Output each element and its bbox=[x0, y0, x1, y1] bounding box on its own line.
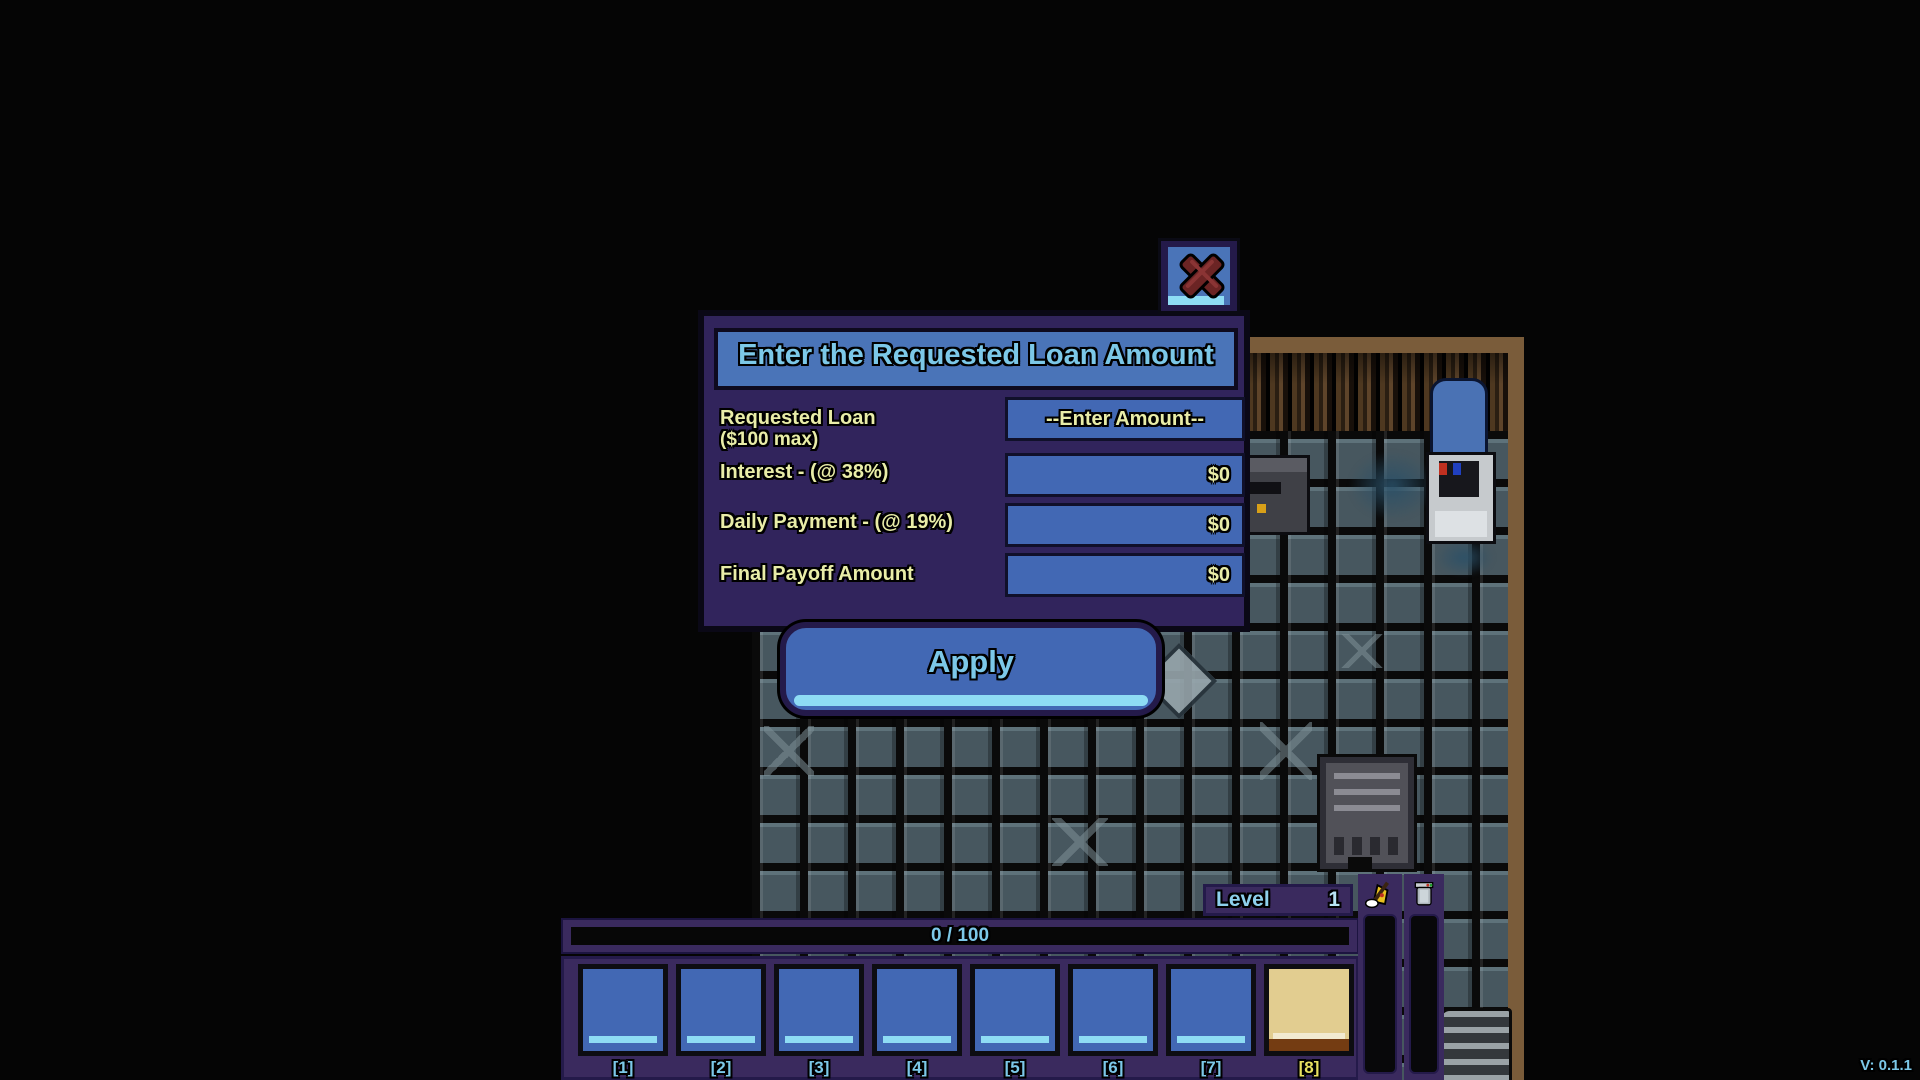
slot-item bbox=[681, 969, 761, 1051]
machine-light bbox=[1257, 504, 1266, 513]
hotbar-slot-5-label: [5] bbox=[970, 1058, 1060, 1078]
hotbar: [1] [2] [3] [4] [5] [6] [7] [8] bbox=[561, 956, 1359, 1080]
slot-item bbox=[1171, 969, 1251, 1051]
requested-loan-label-line2: ($100 max) bbox=[720, 429, 1010, 450]
xp-progress-text: 0 / 100 bbox=[563, 925, 1357, 947]
water-cooler bbox=[1426, 452, 1496, 544]
wall-right-border bbox=[1508, 337, 1524, 1080]
slot-item bbox=[779, 969, 859, 1051]
game-screen: Enter the Requested Loan Amount Requeste… bbox=[0, 0, 1920, 1080]
hotbar-slot-8-label: [8] bbox=[1264, 1058, 1354, 1078]
slot-item bbox=[583, 969, 663, 1051]
apply-button[interactable]: Apply bbox=[780, 622, 1162, 716]
hotbar-slot-2[interactable] bbox=[676, 964, 766, 1056]
hotbar-slot-1[interactable] bbox=[578, 964, 668, 1056]
mop-icon bbox=[1365, 878, 1395, 910]
interest-value: $0 bbox=[1005, 453, 1245, 497]
floor-scratch bbox=[1052, 818, 1108, 866]
requested-loan-label: Requested Loan ($100 max) bbox=[720, 408, 1010, 450]
requested-loan-input[interactable]: --Enter Amount-- bbox=[1005, 397, 1245, 441]
final-payoff-label: Final Payoff Amount bbox=[720, 564, 1010, 585]
slot-item bbox=[877, 969, 957, 1051]
cleaning-meter bbox=[1358, 874, 1402, 1080]
level-indicator: Level 1 bbox=[1203, 884, 1353, 916]
x-icon bbox=[1175, 249, 1229, 303]
cooler-hot-tap bbox=[1439, 463, 1447, 475]
level-label: Level bbox=[1216, 888, 1270, 912]
water-cooler-bottle bbox=[1430, 378, 1488, 460]
apply-button-highlight bbox=[794, 695, 1148, 706]
dialog-title: Enter the Requested Loan Amount bbox=[714, 328, 1238, 390]
hotbar-slot-3-label: [3] bbox=[774, 1058, 864, 1078]
apply-button-label: Apply bbox=[786, 644, 1156, 680]
notice-text-lines bbox=[1334, 773, 1400, 821]
machine-bezel bbox=[1241, 458, 1307, 472]
slot-item-selected bbox=[1269, 969, 1349, 1051]
hotbar-slot-4-label: [4] bbox=[872, 1058, 962, 1078]
hotbar-slot-1-label: [1] bbox=[578, 1058, 668, 1078]
supply-meter-track bbox=[1409, 914, 1439, 1074]
hotbar-slot-5[interactable] bbox=[970, 964, 1060, 1056]
slot-item bbox=[1073, 969, 1153, 1051]
hotbar-slot-8[interactable] bbox=[1264, 964, 1354, 1056]
cleaning-meter-track bbox=[1363, 914, 1397, 1074]
slot-item bbox=[975, 969, 1055, 1051]
version-label: V: 0.1.1 bbox=[1860, 1057, 1912, 1074]
hotbar-slot-7[interactable] bbox=[1166, 964, 1256, 1056]
close-button[interactable] bbox=[1158, 238, 1240, 314]
machine-slot bbox=[1249, 482, 1281, 494]
floor-scratch bbox=[1340, 634, 1384, 668]
level-value: 1 bbox=[1328, 888, 1340, 912]
xp-progress-bar: 0 / 100 bbox=[561, 918, 1359, 954]
hotbar-slot-4[interactable] bbox=[872, 964, 962, 1056]
supply-meter bbox=[1404, 874, 1444, 1080]
cooler-cold-tap bbox=[1453, 463, 1461, 475]
notice-board-stand bbox=[1348, 857, 1372, 871]
cooler-base bbox=[1435, 511, 1487, 537]
hotbar-slot-6-label: [6] bbox=[1068, 1058, 1158, 1078]
floor-scratch bbox=[764, 726, 814, 776]
hotbar-slot-7-label: [7] bbox=[1166, 1058, 1256, 1078]
hotbar-slot-6[interactable] bbox=[1068, 964, 1158, 1056]
canister-icon bbox=[1411, 878, 1437, 910]
daily-payment-value: $0 bbox=[1005, 503, 1245, 547]
loan-dialog: Enter the Requested Loan Amount Requeste… bbox=[698, 310, 1250, 632]
hotbar-slot-2-label: [2] bbox=[676, 1058, 766, 1078]
floor-prop bbox=[1438, 1008, 1512, 1080]
daily-payment-label: Daily Payment - (@ 19%) bbox=[720, 512, 1010, 533]
notice-board bbox=[1320, 757, 1414, 869]
requested-loan-label-line1: Requested Loan bbox=[720, 408, 1010, 429]
floor-scratch bbox=[1260, 722, 1312, 780]
final-payoff-value: $0 bbox=[1005, 553, 1245, 597]
interest-label: Interest - (@ 38%) bbox=[720, 462, 1010, 483]
notice-footer-marks bbox=[1334, 837, 1400, 855]
hotbar-slot-3[interactable] bbox=[774, 964, 864, 1056]
